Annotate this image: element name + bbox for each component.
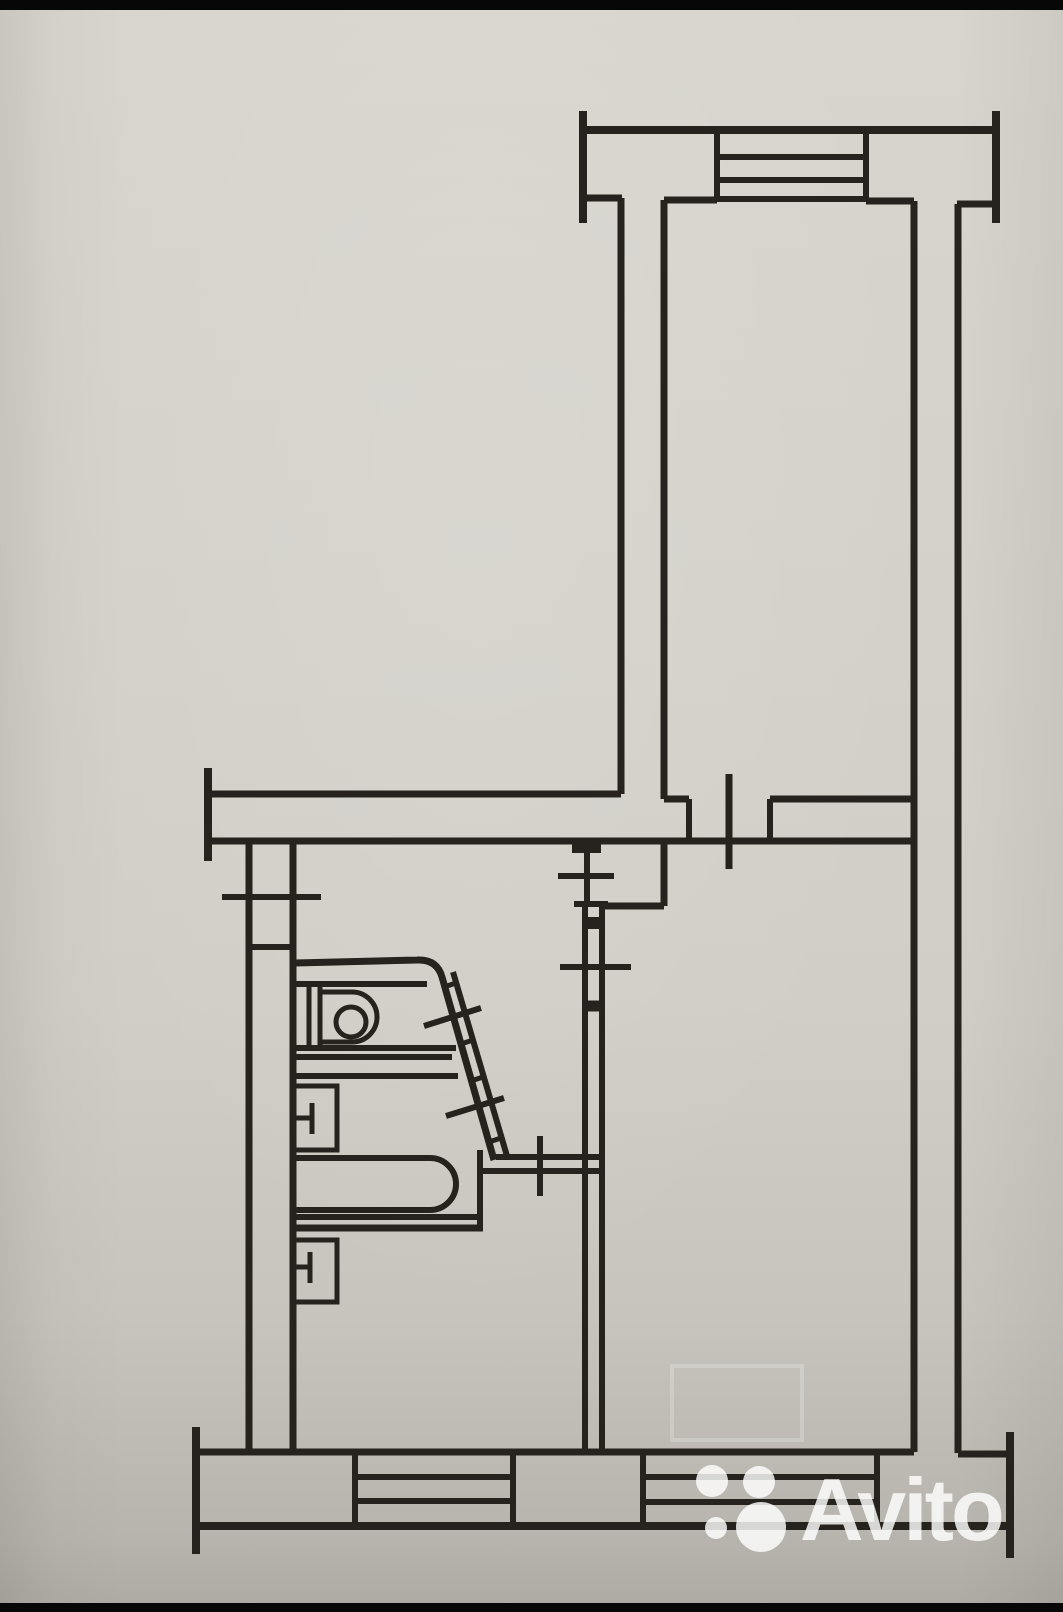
screenshot-root: Avito	[0, 0, 1063, 1612]
avito-logo-text: Avito	[800, 1466, 1002, 1554]
letterbox-bottom	[0, 1603, 1063, 1612]
avito-dot-bottom-right	[736, 1502, 786, 1552]
avito-dot-bottom-left	[705, 1517, 727, 1539]
avito-dot-top-right	[743, 1466, 775, 1498]
letterbox-top	[0, 0, 1063, 10]
avito-watermark-dots	[0, 10, 1063, 1603]
floorplan-photo: Avito	[0, 10, 1063, 1603]
avito-dot-top-left	[696, 1465, 728, 1497]
